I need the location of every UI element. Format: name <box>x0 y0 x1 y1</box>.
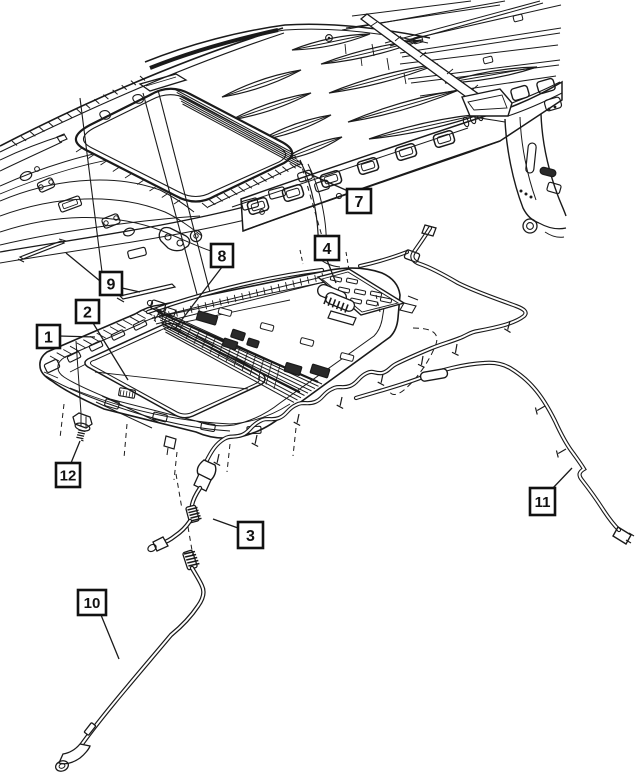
svg-text:9: 9 <box>107 276 116 293</box>
svg-text:8: 8 <box>218 248 227 265</box>
svg-text:7: 7 <box>355 194 364 211</box>
svg-text:1: 1 <box>44 329 53 346</box>
svg-text:12: 12 <box>60 467 77 484</box>
svg-text:10: 10 <box>84 595 101 612</box>
svg-text:11: 11 <box>535 494 551 511</box>
svg-text:4: 4 <box>323 241 332 258</box>
svg-text:3: 3 <box>246 528 255 545</box>
svg-text:2: 2 <box>83 304 92 321</box>
